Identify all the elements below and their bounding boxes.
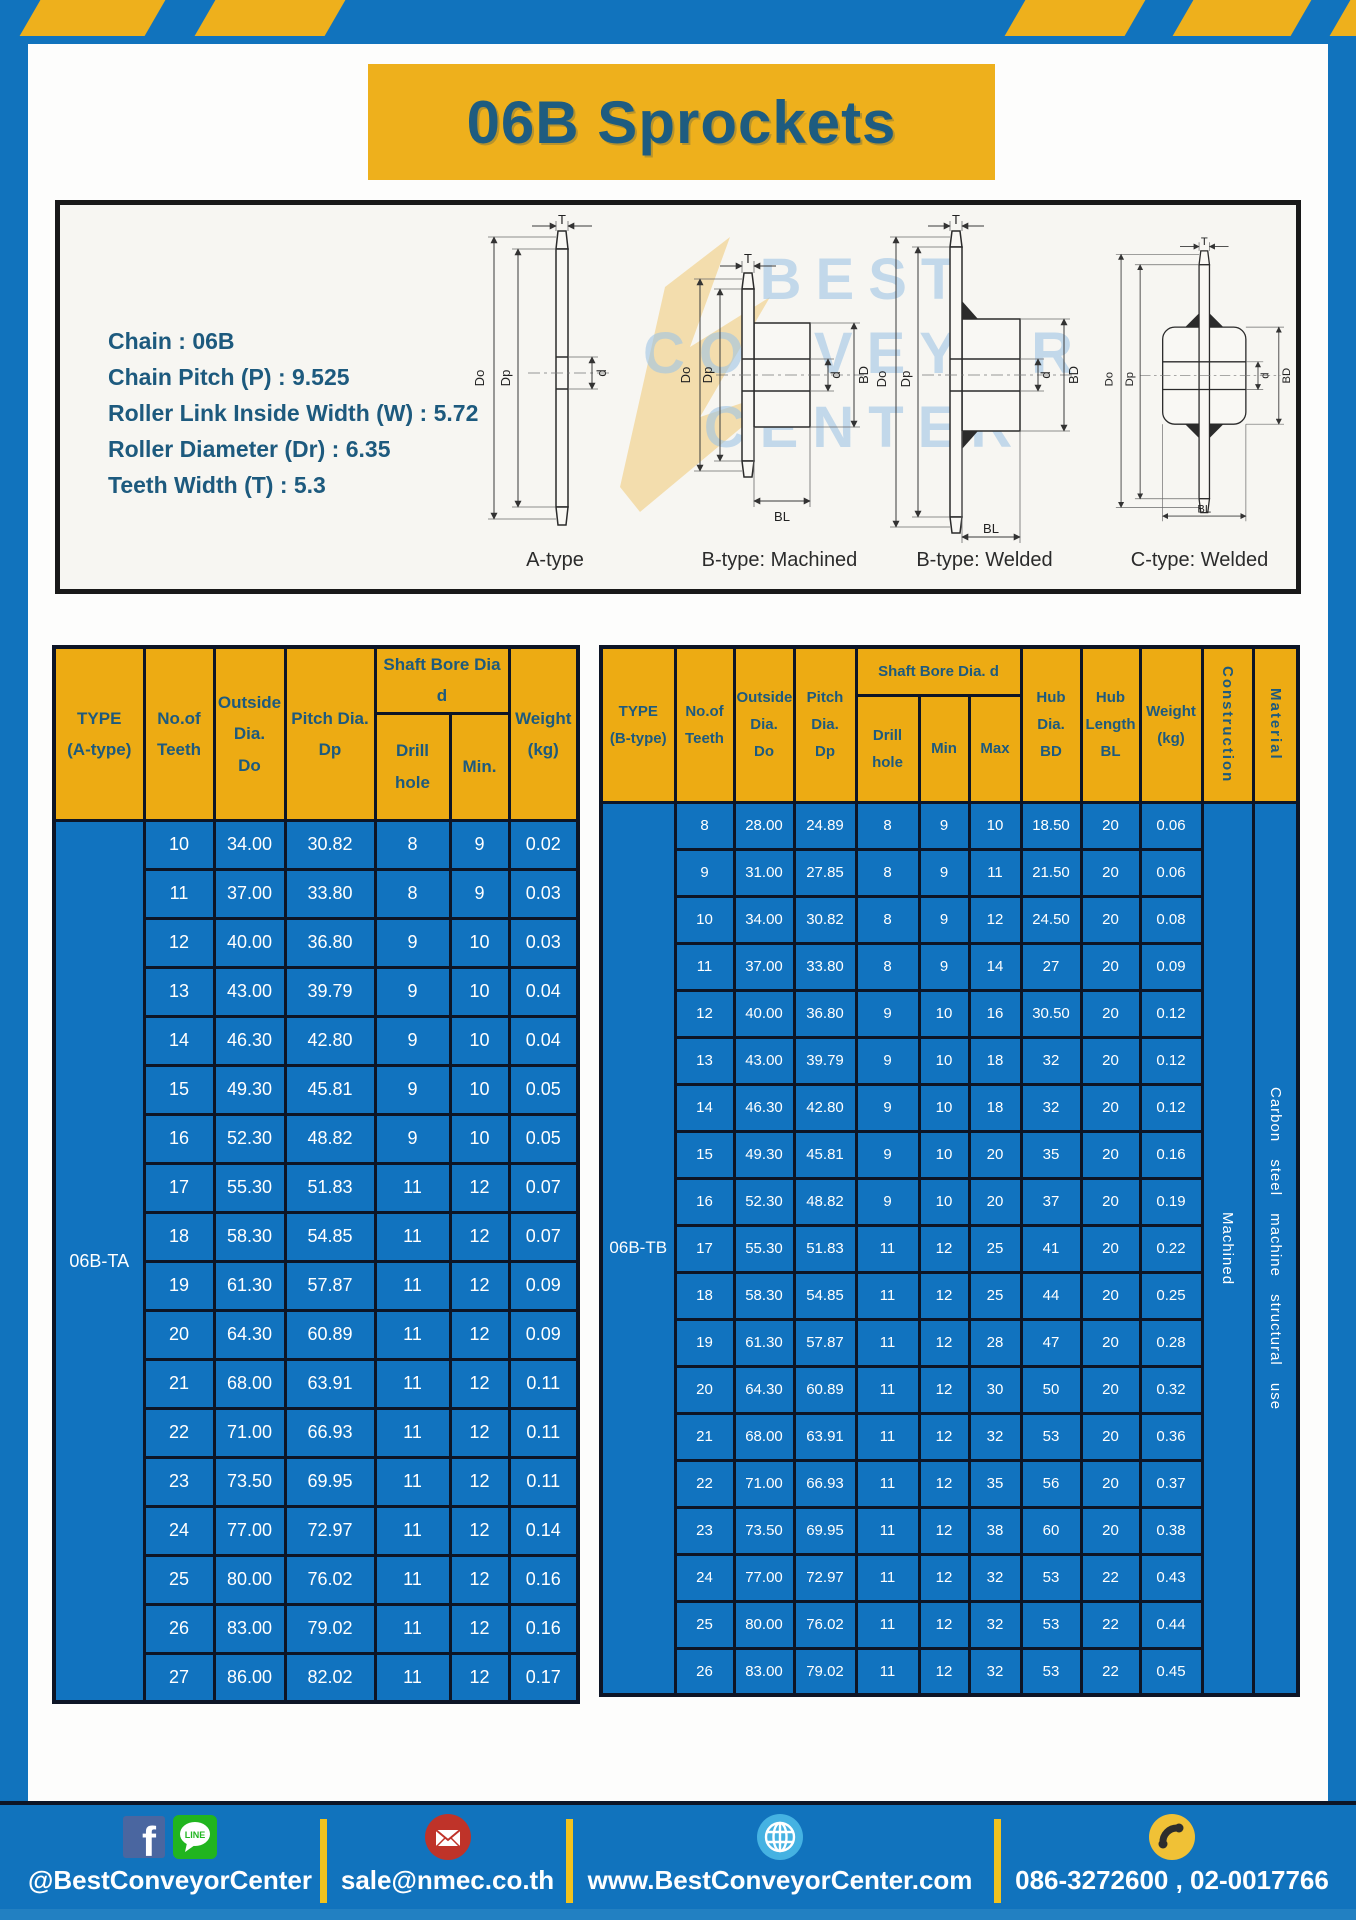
- table-cell: 9: [919, 943, 969, 990]
- table-cell: 32: [969, 1413, 1021, 1460]
- table-cell: 57.87: [285, 1261, 375, 1310]
- table-cell: 9: [375, 1016, 450, 1065]
- table-cell: 11: [375, 1457, 450, 1506]
- table-cell: 11: [856, 1648, 919, 1695]
- table-cell: 9: [919, 896, 969, 943]
- table-cell: 20: [1081, 1131, 1140, 1178]
- table-cell: 34.00: [734, 896, 794, 943]
- header-drill-hole: Drill hole: [856, 695, 919, 802]
- table-row: 1343.0039.799101832200.12: [601, 1037, 1298, 1084]
- facebook-icon: f: [123, 1816, 165, 1858]
- table-cell: 18: [675, 1272, 734, 1319]
- table-cell: 34.00: [214, 820, 285, 869]
- dim-label-bd: BD: [856, 366, 871, 384]
- dim-label-dp: Dp: [898, 371, 913, 388]
- table-cell: 10: [919, 1084, 969, 1131]
- table-cell: 0.02: [509, 820, 578, 869]
- spec-drawing-panel: BEST CONVEYOR CENTER Chain : 06B Chain P…: [55, 200, 1301, 594]
- table-row: 2683.0079.0211123253220.45: [601, 1648, 1298, 1695]
- table-cell: 0.03: [509, 869, 578, 918]
- table-cell: 0.38: [1140, 1507, 1202, 1554]
- table-cell: 52.30: [734, 1178, 794, 1225]
- table-cell: 38: [969, 1507, 1021, 1554]
- table-cell: 60.89: [794, 1366, 856, 1413]
- table-cell: 55.30: [214, 1163, 285, 1212]
- table-cell: 61.30: [734, 1319, 794, 1366]
- table-cell: 73.50: [214, 1457, 285, 1506]
- table-cell: 0.07: [509, 1163, 578, 1212]
- table-cell: 9: [919, 802, 969, 849]
- table-cell: 64.30: [214, 1310, 285, 1359]
- table-cell: 40.00: [214, 918, 285, 967]
- table-cell: 18: [969, 1084, 1021, 1131]
- table-cell: 9: [856, 990, 919, 1037]
- table-cell: 83.00: [214, 1604, 285, 1653]
- table-cell: 14: [969, 943, 1021, 990]
- table-cell: 12: [450, 1359, 509, 1408]
- table-cell: 0.16: [509, 1555, 578, 1604]
- table-cell: 12: [450, 1212, 509, 1261]
- table-cell: 0.45: [1140, 1648, 1202, 1695]
- table-cell: 30.82: [285, 820, 375, 869]
- table-cell: 10: [450, 918, 509, 967]
- table-cell: 80.00: [734, 1601, 794, 1648]
- table-cell: 30: [969, 1366, 1021, 1413]
- dim-label-dp: Dp: [700, 367, 715, 384]
- table-cell: 24: [675, 1554, 734, 1601]
- table-cell: 10: [450, 967, 509, 1016]
- table-cell: 20: [1081, 849, 1140, 896]
- table-cell: 20: [1081, 1178, 1140, 1225]
- table-cell: 57.87: [794, 1319, 856, 1366]
- table-cell: 11: [375, 1261, 450, 1310]
- table-cell: 9: [919, 849, 969, 896]
- footer-website-group: www.BestConveyorCenter.com: [580, 1811, 980, 1896]
- table-cell: 0.04: [509, 1016, 578, 1065]
- table-cell: 0.04: [509, 967, 578, 1016]
- table-cell: 12: [919, 1413, 969, 1460]
- table-cell: 0.05: [509, 1065, 578, 1114]
- table-cell: 33.80: [794, 943, 856, 990]
- header-material: Material: [1253, 647, 1298, 802]
- footer-social-handle: @BestConveyorCenter: [28, 1865, 312, 1896]
- right-border: [1328, 0, 1356, 1920]
- table-cell: 41: [1021, 1225, 1081, 1272]
- dim-label-bd: BD: [1281, 368, 1293, 384]
- dim-label-dp: Dp: [498, 370, 513, 387]
- table-cell: 8: [375, 820, 450, 869]
- footer-email: sale@nmec.co.th: [341, 1865, 554, 1896]
- material-value-cell: Carbon steel machine structural use: [1253, 802, 1298, 1695]
- table-cell: 11: [856, 1507, 919, 1554]
- table-row: 1549.3045.819102035200.16: [601, 1131, 1298, 1178]
- table-cell: 53: [1021, 1648, 1081, 1695]
- table-cell: 9: [856, 1131, 919, 1178]
- table-row: 2477.0072.9711123253220.43: [601, 1554, 1298, 1601]
- table-cell: 0.43: [1140, 1554, 1202, 1601]
- table-cell: 22: [675, 1460, 734, 1507]
- table-cell: 20: [1081, 1084, 1140, 1131]
- table-cell: 0.25: [1140, 1272, 1202, 1319]
- table-cell: 47: [1021, 1319, 1081, 1366]
- table-cell: 45.81: [285, 1065, 375, 1114]
- table-cell: 0.28: [1140, 1319, 1202, 1366]
- table-cell: 0.09: [509, 1261, 578, 1310]
- type-label-cell: 06B-TA: [54, 820, 144, 1702]
- table-cell: 86.00: [214, 1653, 285, 1702]
- header-outside-dia: Outside Dia. Do: [214, 647, 285, 820]
- table-cell: 11: [856, 1272, 919, 1319]
- table-cell: 0.09: [1140, 943, 1202, 990]
- table-cell: 11: [375, 1310, 450, 1359]
- table-cell: 0.09: [509, 1310, 578, 1359]
- table-cell: 8: [856, 802, 919, 849]
- table-cell: 20: [1081, 1460, 1140, 1507]
- table-row: 1755.3051.8311122541200.22: [601, 1225, 1298, 1272]
- table-cell: 20: [1081, 1507, 1140, 1554]
- table-row: 2168.0063.9111123253200.36: [601, 1413, 1298, 1460]
- a-type-table: TYPE (A-type) No.of Teeth Outside Dia. D…: [52, 645, 580, 1704]
- svg-text:LINE: LINE: [185, 1830, 206, 1840]
- table-cell: 11: [675, 943, 734, 990]
- drawing-c-type-welded: T Do Dp: [1102, 215, 1297, 572]
- table-cell: 0.16: [1140, 1131, 1202, 1178]
- drawing-b-type-welded: T Do Dp: [872, 215, 1097, 572]
- page: 06B Sprockets BEST CONVEYOR CENTER Chain…: [0, 0, 1356, 1920]
- table-cell: 48.82: [794, 1178, 856, 1225]
- table-cell: 16: [144, 1114, 214, 1163]
- table-cell: 11: [856, 1225, 919, 1272]
- table-cell: 20: [1081, 896, 1140, 943]
- table-cell: 46.30: [214, 1016, 285, 1065]
- table-cell: 0.08: [1140, 896, 1202, 943]
- table-cell: 17: [144, 1163, 214, 1212]
- table-cell: 11: [375, 1653, 450, 1702]
- table-cell: 22: [1081, 1554, 1140, 1601]
- table-cell: 24.89: [794, 802, 856, 849]
- table-cell: 12: [919, 1554, 969, 1601]
- table-cell: 0.12: [1140, 1084, 1202, 1131]
- table-cell: 33.80: [285, 869, 375, 918]
- table-cell: 26: [144, 1604, 214, 1653]
- table-cell: 51.83: [794, 1225, 856, 1272]
- table-cell: 73.50: [734, 1507, 794, 1554]
- table-cell: 56: [1021, 1460, 1081, 1507]
- table-cell: 12: [144, 918, 214, 967]
- table-cell: 52.30: [214, 1114, 285, 1163]
- table-cell: 12: [450, 1163, 509, 1212]
- table-cell: 0.22: [1140, 1225, 1202, 1272]
- table-cell: 0.07: [509, 1212, 578, 1261]
- b-type-table: TYPE (B-type) No.of Teeth Outside Dia. D…: [599, 645, 1300, 1697]
- dim-label-bd: BD: [1066, 366, 1081, 384]
- table-cell: 27.85: [794, 849, 856, 896]
- table-cell: 32: [969, 1648, 1021, 1695]
- line-icon: LINE: [173, 1815, 217, 1859]
- table-cell: 20: [1081, 990, 1140, 1037]
- table-cell: 43.00: [214, 967, 285, 1016]
- table-row: 2271.0066.9311123556200.37: [601, 1460, 1298, 1507]
- table-cell: 12: [675, 990, 734, 1037]
- table-cell: 69.95: [285, 1457, 375, 1506]
- table-cell: 0.11: [509, 1408, 578, 1457]
- footer-phones: 086-3272600 , 02-0017766: [1015, 1865, 1329, 1896]
- table-cell: 32: [1021, 1084, 1081, 1131]
- dim-label-do: Do: [874, 371, 889, 388]
- table-cell: 12: [919, 1225, 969, 1272]
- globe-icon: [756, 1813, 804, 1861]
- table-cell: 60: [1021, 1507, 1081, 1554]
- table-cell: 77.00: [734, 1554, 794, 1601]
- dim-label-bl: BL: [774, 509, 790, 524]
- table-cell: 20: [1081, 1366, 1140, 1413]
- table-cell: 68.00: [734, 1413, 794, 1460]
- table-cell: 9: [375, 1114, 450, 1163]
- table-cell: 79.02: [285, 1604, 375, 1653]
- table-cell: 10: [969, 802, 1021, 849]
- table-cell: 20: [1081, 943, 1140, 990]
- table-cell: 76.02: [285, 1555, 375, 1604]
- table-cell: 8: [675, 802, 734, 849]
- technical-drawings: T Do Dp d A-type: [60, 205, 1296, 589]
- table-cell: 63.91: [285, 1359, 375, 1408]
- table-cell: 36.80: [285, 918, 375, 967]
- table-cell: 20: [1081, 1413, 1140, 1460]
- header-weight: Weight (kg): [509, 647, 578, 820]
- table-cell: 0.17: [509, 1653, 578, 1702]
- dim-label-do: Do: [472, 370, 487, 387]
- table-cell: 72.97: [285, 1506, 375, 1555]
- footer-divider: [994, 1819, 1001, 1903]
- table-cell: 0.44: [1140, 1601, 1202, 1648]
- table-cell: 8: [856, 896, 919, 943]
- table-cell: 12: [450, 1457, 509, 1506]
- table-cell: 0.32: [1140, 1366, 1202, 1413]
- table-cell: 50: [1021, 1366, 1081, 1413]
- table-cell: 9: [856, 1084, 919, 1131]
- table-cell: 0.36: [1140, 1413, 1202, 1460]
- table-cell: 12: [969, 896, 1021, 943]
- table-cell: 11: [375, 1212, 450, 1261]
- table-cell: 12: [919, 1272, 969, 1319]
- table-cell: 35: [969, 1460, 1021, 1507]
- dim-label-bl: BL: [1197, 504, 1211, 516]
- footer-contact-bar: f LINE @BestConveyorCenter: [0, 1805, 1356, 1920]
- footer-website: www.BestConveyorCenter.com: [588, 1865, 973, 1896]
- header-shaft-bore: Shaft Bore Dia. d: [856, 647, 1021, 695]
- table-cell: 58.30: [214, 1212, 285, 1261]
- table-cell: 20: [969, 1131, 1021, 1178]
- table-row: 931.0027.85891121.50200.06: [601, 849, 1298, 896]
- table-cell: 68.00: [214, 1359, 285, 1408]
- table-cell: 10: [144, 820, 214, 869]
- table-cell: 13: [144, 967, 214, 1016]
- table-cell: 9: [856, 1037, 919, 1084]
- table-cell: 0.11: [509, 1359, 578, 1408]
- left-border: [0, 0, 28, 1920]
- table-cell: 37.00: [214, 869, 285, 918]
- stripe-decoration: [1173, 0, 1312, 36]
- table-cell: 54.85: [794, 1272, 856, 1319]
- table-cell: 0.05: [509, 1114, 578, 1163]
- table-cell: 64.30: [734, 1366, 794, 1413]
- table-cell: 49.30: [214, 1065, 285, 1114]
- table-cell: 11: [144, 869, 214, 918]
- table-cell: 20: [1081, 1225, 1140, 1272]
- header-min: Min.: [450, 713, 509, 820]
- table-cell: 16: [969, 990, 1021, 1037]
- table-cell: 11: [969, 849, 1021, 896]
- table-cell: 32: [1021, 1037, 1081, 1084]
- header-weight: Weight (kg): [1140, 647, 1202, 802]
- table-cell: 43.00: [734, 1037, 794, 1084]
- table-cell: 53: [1021, 1554, 1081, 1601]
- top-band: [0, 0, 1356, 44]
- table-cell: 30.50: [1021, 990, 1081, 1037]
- table-cell: 11: [856, 1413, 919, 1460]
- table-cell: 40.00: [734, 990, 794, 1037]
- dim-label-d: d: [594, 369, 609, 376]
- table-cell: 30.82: [794, 896, 856, 943]
- header-outside-dia: Outside Dia. Do: [734, 647, 794, 802]
- table-cell: 31.00: [734, 849, 794, 896]
- drawing-caption: B-type: Welded: [916, 549, 1052, 572]
- table-cell: 39.79: [794, 1037, 856, 1084]
- table-cell: 12: [919, 1319, 969, 1366]
- drawing-caption: C-type: Welded: [1131, 549, 1268, 572]
- table-cell: 22: [1081, 1601, 1140, 1648]
- table-cell: 45.81: [794, 1131, 856, 1178]
- table-cell: 55.30: [734, 1225, 794, 1272]
- stripe-decoration: [195, 0, 346, 36]
- table-cell: 24: [144, 1506, 214, 1555]
- table-cell: 12: [450, 1408, 509, 1457]
- table-cell: 20: [1081, 1319, 1140, 1366]
- table-cell: 0.16: [509, 1604, 578, 1653]
- table-cell: 9: [375, 967, 450, 1016]
- construction-value-cell: Machined: [1202, 802, 1253, 1695]
- header-construction: Construction: [1202, 647, 1253, 802]
- table-cell: 77.00: [214, 1506, 285, 1555]
- table-cell: 19: [144, 1261, 214, 1310]
- table-row: 1446.3042.809101832200.12: [601, 1084, 1298, 1131]
- table-cell: 63.91: [794, 1413, 856, 1460]
- table-cell: 8: [856, 943, 919, 990]
- table-cell: 19: [675, 1319, 734, 1366]
- drawing-a-type: T Do Dp d A-type: [470, 215, 640, 572]
- table-cell: 42.80: [794, 1084, 856, 1131]
- table-cell: 20: [1081, 1272, 1140, 1319]
- table-cell: 10: [675, 896, 734, 943]
- svg-text:f: f: [142, 1818, 157, 1858]
- table-cell: 9: [375, 918, 450, 967]
- table-cell: 37.00: [734, 943, 794, 990]
- table-row: 06B-TA1034.0030.82890.02: [54, 820, 578, 869]
- header-drill-hole: Drill hole: [375, 713, 450, 820]
- table-cell: 9: [856, 1178, 919, 1225]
- header-teeth: No.of Teeth: [144, 647, 214, 820]
- table-cell: 15: [675, 1131, 734, 1178]
- header-hub-length: Hub Length BL: [1081, 647, 1140, 802]
- table-cell: 10: [450, 1065, 509, 1114]
- dim-label-t: T: [558, 215, 566, 227]
- table-cell: 23: [675, 1507, 734, 1554]
- table-cell: 44: [1021, 1272, 1081, 1319]
- table-cell: 14: [144, 1016, 214, 1065]
- table-cell: 10: [919, 990, 969, 1037]
- table-cell: 20: [1081, 1037, 1140, 1084]
- table-cell: 11: [375, 1604, 450, 1653]
- table-cell: 80.00: [214, 1555, 285, 1604]
- table-cell: 58.30: [734, 1272, 794, 1319]
- table-cell: 11: [856, 1601, 919, 1648]
- footer-divider: [566, 1819, 573, 1903]
- table-cell: 0.11: [509, 1457, 578, 1506]
- drawing-caption: B-type: Machined: [702, 549, 858, 572]
- table-cell: 9: [375, 1065, 450, 1114]
- header-pitch-dia: Pitch Dia. Dp: [285, 647, 375, 820]
- table-cell: 48.82: [285, 1114, 375, 1163]
- header-shaft-bore: Shaft Bore Dia d: [375, 647, 509, 713]
- table-row: 2064.3060.8911123050200.32: [601, 1366, 1298, 1413]
- table-cell: 54.85: [285, 1212, 375, 1261]
- table-cell: 21.50: [1021, 849, 1081, 896]
- table-cell: 9: [450, 820, 509, 869]
- drawing-caption: A-type: [526, 549, 584, 572]
- table-row: 1240.0036.809101630.50200.12: [601, 990, 1298, 1037]
- dim-label-do: Do: [678, 367, 693, 384]
- table-cell: 12: [919, 1507, 969, 1554]
- table-cell: 12: [450, 1653, 509, 1702]
- table-cell: 11: [856, 1319, 919, 1366]
- table-cell: 0.19: [1140, 1178, 1202, 1225]
- table-cell: 28: [969, 1319, 1021, 1366]
- table-cell: 24.50: [1021, 896, 1081, 943]
- table-cell: 11: [856, 1460, 919, 1507]
- phone-icon: [1148, 1813, 1196, 1861]
- footer-bottom-strip: [0, 1909, 1356, 1920]
- table-cell: 20: [144, 1310, 214, 1359]
- table-cell: 0.12: [1140, 1037, 1202, 1084]
- table-cell: 61.30: [214, 1261, 285, 1310]
- table-row: 1652.3048.829102037200.19: [601, 1178, 1298, 1225]
- table-cell: 17: [675, 1225, 734, 1272]
- table-cell: 10: [450, 1114, 509, 1163]
- table-cell: 0.06: [1140, 849, 1202, 896]
- table-cell: 25: [969, 1272, 1021, 1319]
- table-cell: 42.80: [285, 1016, 375, 1065]
- dim-label-d: d: [828, 371, 843, 378]
- table-cell: 71.00: [214, 1408, 285, 1457]
- table-row: 1961.3057.8711122847200.28: [601, 1319, 1298, 1366]
- table-cell: 10: [919, 1178, 969, 1225]
- table-cell: 37: [1021, 1178, 1081, 1225]
- table-cell: 11: [375, 1408, 450, 1457]
- header-type: TYPE (A-type): [54, 647, 144, 820]
- table-cell: 11: [375, 1555, 450, 1604]
- table-cell: 12: [450, 1604, 509, 1653]
- table-cell: 10: [919, 1131, 969, 1178]
- header-max: Max: [969, 695, 1021, 802]
- table-cell: 82.02: [285, 1653, 375, 1702]
- header-hub-dia: Hub Dia. BD: [1021, 647, 1081, 802]
- table-cell: 20: [969, 1178, 1021, 1225]
- dim-label-dp: Dp: [1124, 372, 1136, 386]
- table-cell: 66.93: [794, 1460, 856, 1507]
- table-cell: 32: [969, 1554, 1021, 1601]
- page-title: 06B Sprockets: [467, 88, 897, 157]
- table-cell: 12: [450, 1555, 509, 1604]
